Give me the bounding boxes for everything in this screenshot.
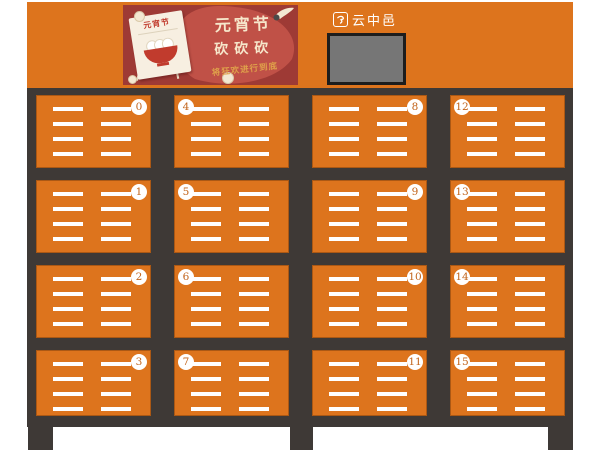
brand-icon — [333, 12, 348, 27]
cabinet-leg-left — [28, 427, 53, 450]
locker-door-0[interactable]: 0 — [36, 95, 151, 168]
locker-door-2[interactable]: 2 — [36, 265, 151, 338]
locker-number-badge: 15 — [454, 354, 470, 370]
locker-door-8[interactable]: 8 — [312, 95, 427, 168]
brand-name: 云中邑 — [352, 10, 397, 29]
locker-door-5[interactable]: 5 — [174, 180, 289, 253]
cabinet-leg-middle — [290, 427, 313, 450]
locker-number-badge: 13 — [454, 184, 470, 200]
brush-icon — [270, 6, 296, 24]
cabinet-leg-right — [548, 427, 573, 450]
locker-number-badge: 11 — [407, 354, 423, 370]
locker-number-badge: 4 — [178, 99, 194, 115]
locker-kiosk: 元宵节 元宵节 砍砍砍 将狂欢进行到底 — [0, 0, 600, 450]
locker-number-badge: 1 — [131, 184, 147, 200]
locker-door-12[interactable]: 12 — [450, 95, 565, 168]
locker-door-15[interactable]: 15 — [450, 350, 565, 416]
control-screen[interactable] — [327, 33, 406, 85]
locker-door-14[interactable]: 14 — [450, 265, 565, 338]
locker-number-badge: 14 — [454, 269, 470, 285]
locker-number-badge: 5 — [178, 184, 194, 200]
locker-cabinet: 元宵节 元宵节 砍砍砍 将狂欢进行到底 — [27, 2, 573, 427]
festival-banner: 元宵节 元宵节 砍砍砍 将狂欢进行到底 — [123, 5, 298, 85]
locker-grid: 0 4 8 12 1 5 9 13 2 6 10 14 3 7 11 15 — [36, 95, 565, 416]
locker-door-9[interactable]: 9 — [312, 180, 427, 253]
locker-number-badge: 7 — [178, 354, 194, 370]
locker-door-13[interactable]: 13 — [450, 180, 565, 253]
locker-door-1[interactable]: 1 — [36, 180, 151, 253]
cabinet-header: 元宵节 元宵节 砍砍砍 将狂欢进行到底 — [27, 2, 573, 88]
locker-number-badge: 0 — [131, 99, 147, 115]
locker-number-badge: 12 — [454, 99, 470, 115]
locker-door-3[interactable]: 3 — [36, 350, 151, 416]
locker-door-11[interactable]: 11 — [312, 350, 427, 416]
pin-dot — [134, 11, 145, 22]
locker-number-badge: 6 — [178, 269, 194, 285]
locker-door-6[interactable]: 6 — [174, 265, 289, 338]
banner-title-line2: 砍砍砍 — [194, 36, 295, 59]
pin-dot — [128, 75, 137, 84]
locker-number-badge: 2 — [131, 269, 147, 285]
locker-door-7[interactable]: 7 — [174, 350, 289, 416]
locker-door-4[interactable]: 4 — [174, 95, 289, 168]
locker-number-badge: 10 — [407, 269, 423, 285]
cabinet-frame: 0 4 8 12 1 5 9 13 2 6 10 14 3 7 11 15 — [27, 88, 573, 427]
locker-number-badge: 3 — [131, 354, 147, 370]
brand: 云中邑 — [333, 10, 397, 29]
locker-number-badge: 8 — [407, 99, 423, 115]
locker-door-10[interactable]: 10 — [312, 265, 427, 338]
locker-number-badge: 9 — [407, 184, 423, 200]
